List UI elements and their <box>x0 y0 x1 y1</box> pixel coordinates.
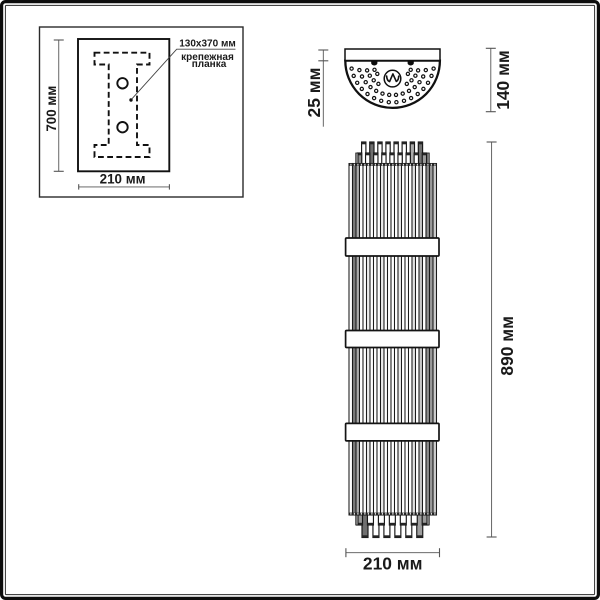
svg-text:890 мм: 890 мм <box>497 316 517 376</box>
svg-text:210 мм: 210 мм <box>100 171 146 186</box>
svg-text:140 мм: 140 мм <box>493 50 513 110</box>
svg-text:планка: планка <box>192 59 227 70</box>
svg-text:210 мм: 210 мм <box>363 554 423 574</box>
svg-text:25 мм: 25 мм <box>304 68 324 118</box>
svg-text:700 мм: 700 мм <box>44 86 59 132</box>
svg-text:130x370 мм: 130x370 мм <box>179 39 236 50</box>
